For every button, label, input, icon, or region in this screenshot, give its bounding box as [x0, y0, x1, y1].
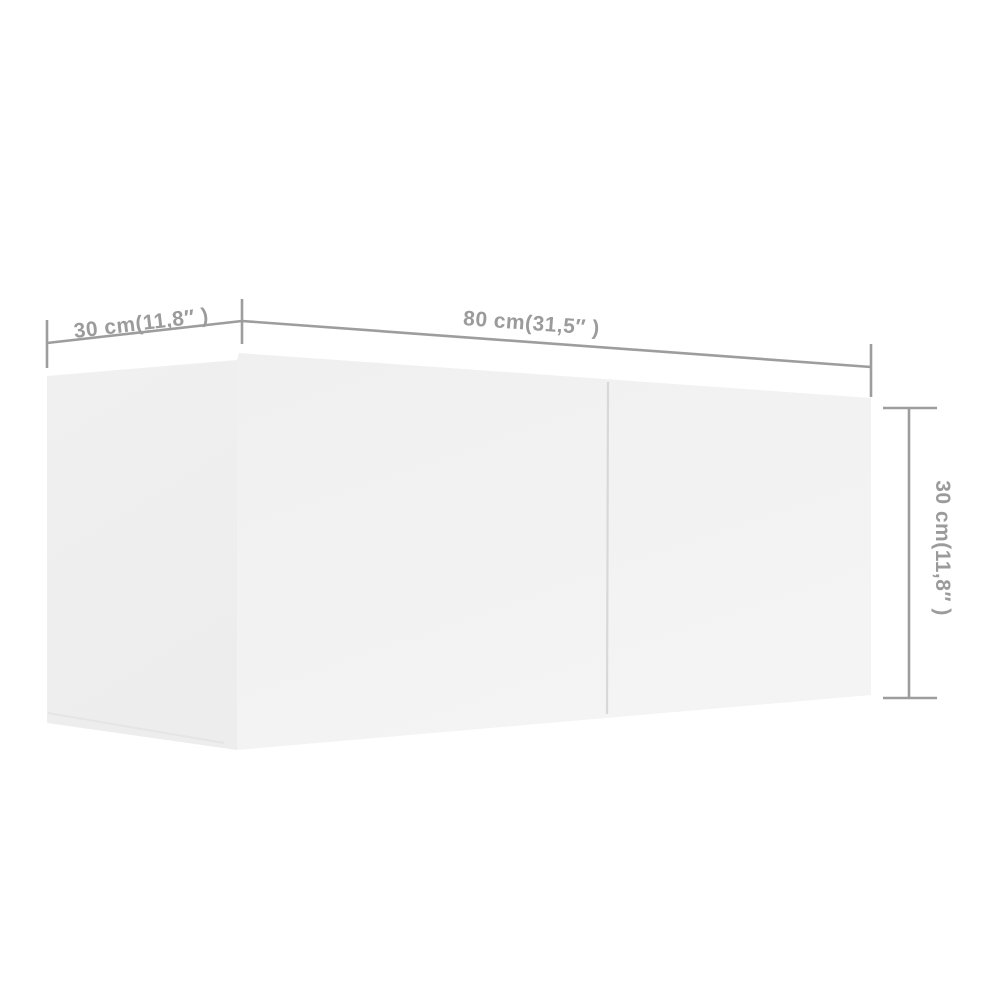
dimension-diagram-canvas: 30 cm(11,8″ ) 80 cm(31,5″ ) 30 cm(11,8″ … — [0, 0, 1000, 1000]
cabinet-side-face — [47, 360, 237, 750]
depth-dimension-label: 30 cm(11,8″ ) — [73, 304, 210, 343]
cabinet-front-face — [237, 353, 871, 750]
door-gap-line — [607, 382, 608, 714]
product-dimension-image: 30 cm(11,8″ ) 80 cm(31,5″ ) 30 cm(11,8″ … — [0, 0, 1000, 1000]
cabinet — [47, 353, 871, 750]
width-dimension-label: 80 cm(31,5″ ) — [462, 307, 600, 340]
height-dimension-label: 30 cm(11,8″ ) — [931, 480, 954, 616]
